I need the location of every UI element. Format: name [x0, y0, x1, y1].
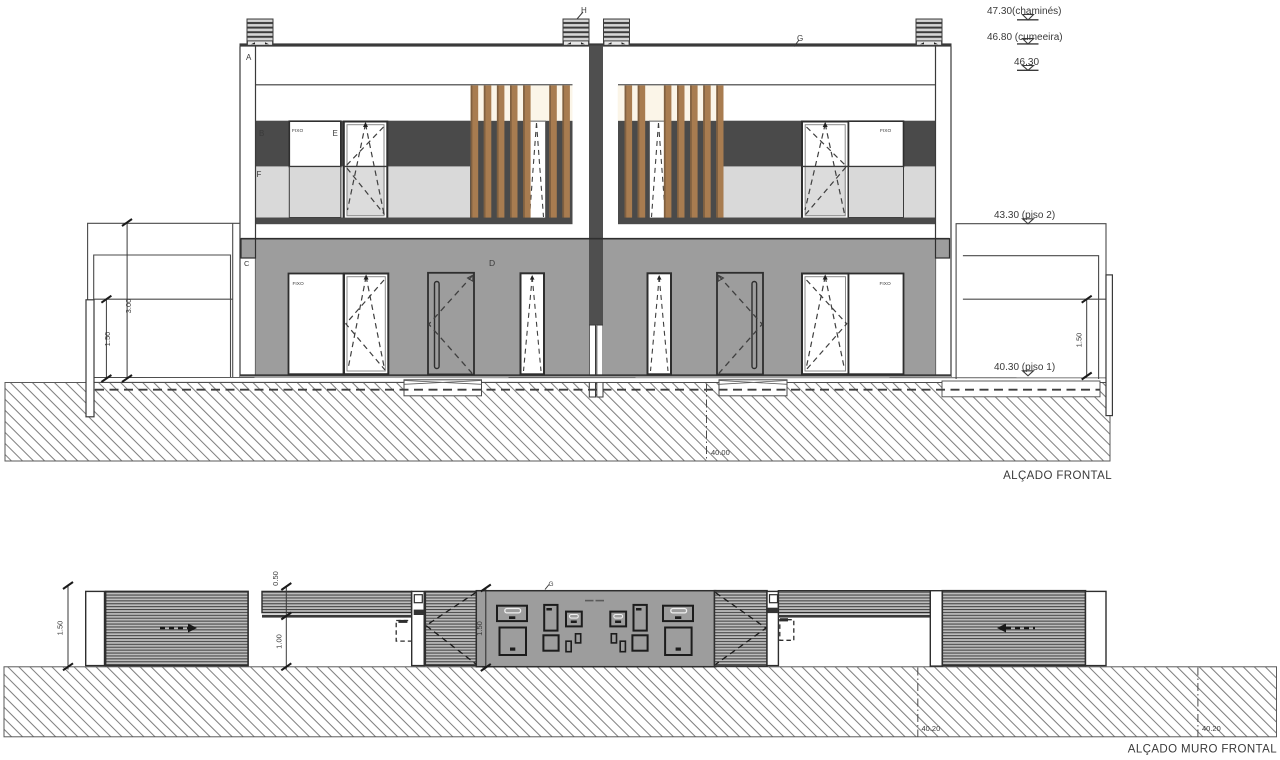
svg-text:B: B: [259, 129, 264, 138]
svg-text:40.30 (piso 1): 40.30 (piso 1): [994, 362, 1055, 373]
svg-text:40.00: 40.00: [711, 448, 730, 457]
svg-text:G: G: [797, 34, 803, 43]
svg-text:1.50: 1.50: [103, 332, 112, 347]
svg-text:1.50: 1.50: [1075, 333, 1084, 348]
svg-text:FIXO: FIXO: [880, 281, 891, 287]
svg-text:1.50: 1.50: [56, 621, 65, 636]
svg-text:G: G: [549, 581, 554, 588]
svg-text:E: E: [333, 129, 338, 138]
svg-text:FIXO: FIXO: [880, 128, 891, 134]
svg-text:40.20: 40.20: [922, 724, 941, 733]
svg-text:F: F: [257, 170, 262, 179]
svg-text:47.30(chaminés): 47.30(chaminés): [987, 6, 1061, 17]
svg-text:H: H: [581, 6, 587, 15]
svg-text:1.50: 1.50: [475, 621, 484, 636]
svg-text:FIXO: FIXO: [293, 281, 304, 287]
svg-text:ALÇADO MURO FRONTAL: ALÇADO MURO FRONTAL: [1128, 744, 1277, 756]
svg-text:1.00: 1.00: [274, 634, 283, 649]
svg-text:D: D: [489, 258, 495, 268]
svg-text:ALÇADO FRONTAL: ALÇADO FRONTAL: [1003, 470, 1112, 482]
svg-text:A: A: [246, 53, 252, 62]
svg-text:46.30: 46.30: [1014, 57, 1039, 68]
svg-text:40.20: 40.20: [1202, 724, 1221, 733]
svg-text:C: C: [244, 259, 250, 268]
svg-text:0.50: 0.50: [271, 571, 280, 586]
svg-text:FIXO: FIXO: [292, 128, 303, 134]
svg-text:3.00: 3.00: [124, 299, 133, 314]
